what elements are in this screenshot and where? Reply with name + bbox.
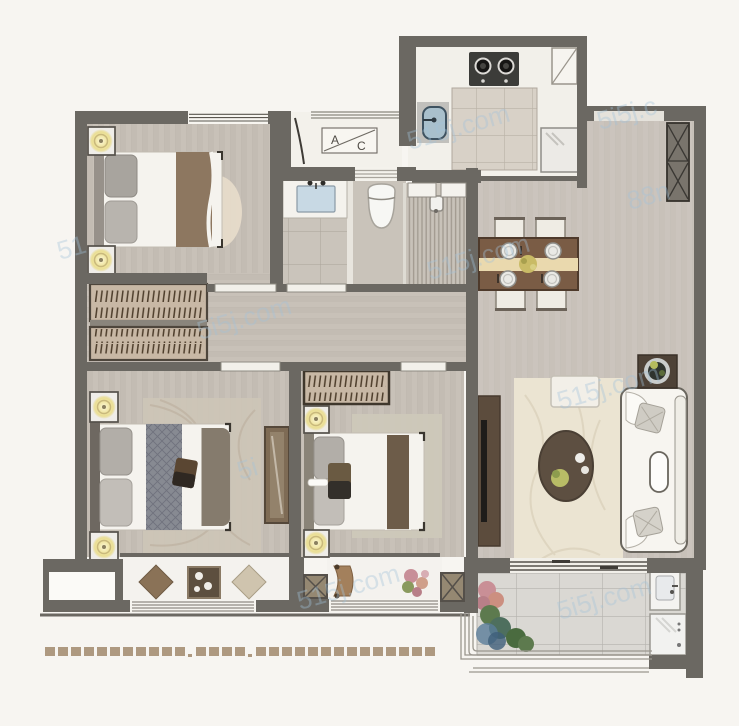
svg-text:C: C	[357, 139, 366, 153]
svg-text:A: A	[331, 133, 339, 147]
